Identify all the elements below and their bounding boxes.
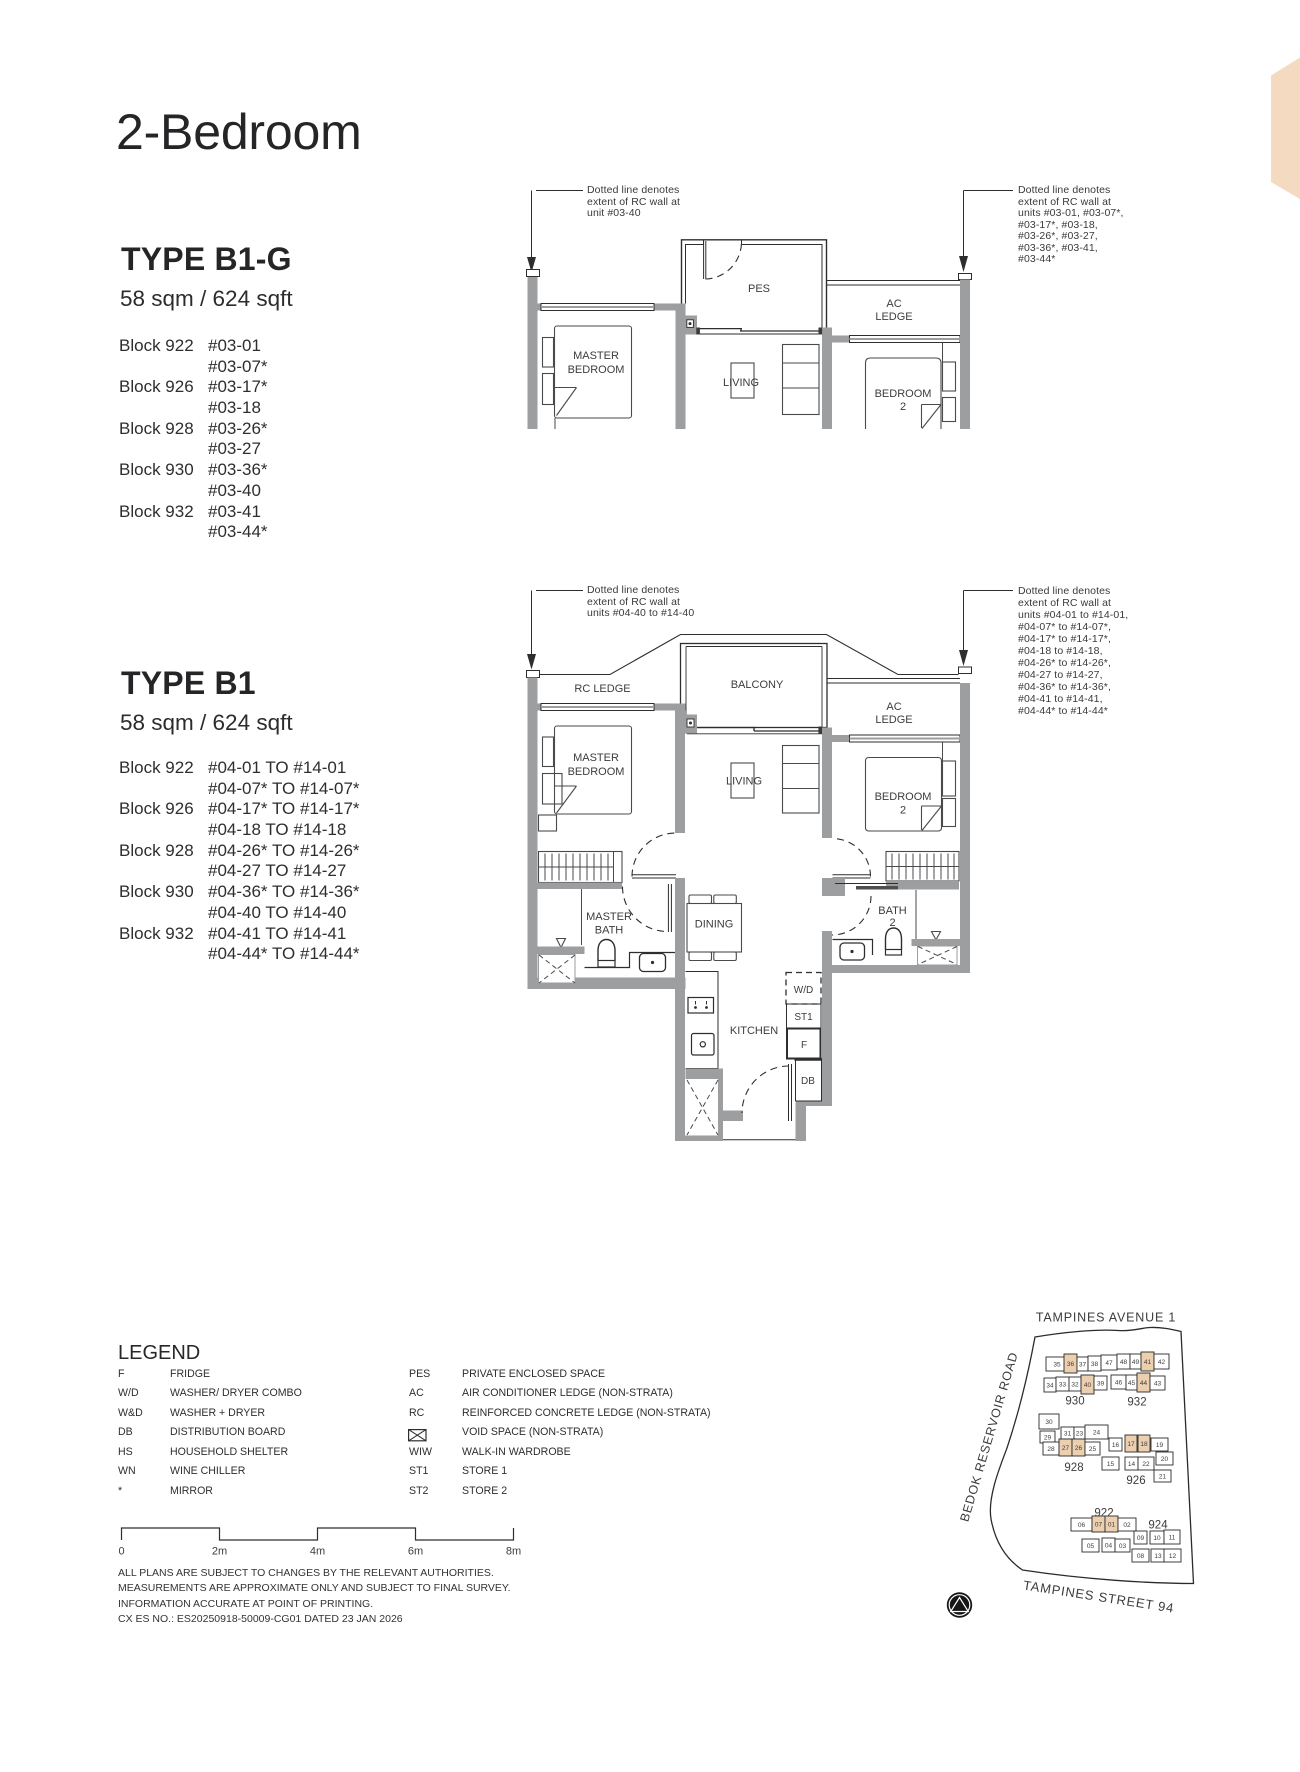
- svg-text:23: 23: [1076, 1430, 1084, 1437]
- svg-text:18: 18: [1140, 1441, 1148, 1448]
- svg-text:LIVING: LIVING: [723, 377, 759, 389]
- svg-text:08: 08: [1137, 1553, 1145, 1560]
- svg-text:22: 22: [1142, 1461, 1150, 1468]
- svg-text:BEDROOM: BEDROOM: [568, 364, 625, 376]
- svg-text:27: 27: [1062, 1445, 1070, 1452]
- svg-text:6m: 6m: [408, 1546, 423, 1558]
- svg-text:MASTER: MASTER: [573, 752, 619, 764]
- svg-text:06: 06: [1078, 1522, 1086, 1529]
- svg-text:39: 39: [1097, 1380, 1105, 1387]
- svg-text:KITCHEN: KITCHEN: [730, 1025, 778, 1037]
- svg-text:BEDROOM: BEDROOM: [875, 388, 932, 400]
- svg-text:MASTER: MASTER: [573, 350, 619, 362]
- svg-text:29: 29: [1044, 1434, 1052, 1441]
- svg-text:2: 2: [889, 917, 895, 929]
- svg-text:PES: PES: [748, 283, 770, 295]
- svg-text:BALCONY: BALCONY: [731, 679, 784, 691]
- svg-text:BEDROOM: BEDROOM: [875, 791, 932, 803]
- svg-text:RC LEDGE: RC LEDGE: [574, 683, 630, 695]
- svg-text:25: 25: [1089, 1446, 1097, 1453]
- svg-text:932: 932: [1127, 1397, 1146, 1409]
- svg-text:48: 48: [1120, 1359, 1128, 1366]
- svg-text:F: F: [801, 1040, 807, 1051]
- svg-text:36: 36: [1067, 1361, 1075, 1368]
- svg-text:TAMPINES AVENUE 1: TAMPINES AVENUE 1: [1036, 1311, 1176, 1325]
- svg-text:41: 41: [1144, 1359, 1152, 1366]
- svg-text:15: 15: [1107, 1461, 1115, 1468]
- svg-text:4m: 4m: [310, 1546, 325, 1558]
- svg-text:44: 44: [1140, 1380, 1148, 1387]
- svg-text:01: 01: [1108, 1521, 1116, 1528]
- svg-text:LEDGE: LEDGE: [875, 311, 912, 323]
- svg-text:LIVING: LIVING: [726, 776, 762, 788]
- svg-text:02: 02: [1123, 1522, 1131, 1529]
- svg-text:BEDOK RESERVOIR ROAD: BEDOK RESERVOIR ROAD: [957, 1350, 1020, 1523]
- svg-text:05: 05: [1087, 1543, 1095, 1550]
- svg-text:AC: AC: [886, 701, 901, 713]
- svg-text:20: 20: [1161, 1456, 1169, 1463]
- svg-text:35: 35: [1053, 1361, 1061, 1368]
- svg-text:49: 49: [1132, 1359, 1140, 1366]
- svg-text:2: 2: [900, 401, 906, 413]
- svg-text:0: 0: [118, 1546, 124, 1558]
- svg-text:12: 12: [1169, 1553, 1177, 1560]
- svg-text:04: 04: [1105, 1542, 1113, 1549]
- svg-text:21: 21: [1159, 1473, 1167, 1480]
- svg-text:03: 03: [1119, 1543, 1127, 1550]
- svg-text:2: 2: [900, 805, 906, 817]
- svg-text:33: 33: [1059, 1381, 1067, 1388]
- svg-text:MASTER: MASTER: [586, 911, 632, 923]
- svg-text:40: 40: [1084, 1382, 1092, 1389]
- svg-text:AC: AC: [886, 298, 901, 310]
- svg-text:16: 16: [1112, 1442, 1120, 1449]
- svg-text:26: 26: [1075, 1445, 1083, 1452]
- svg-text:38: 38: [1091, 1361, 1099, 1368]
- svg-text:930: 930: [1065, 1396, 1084, 1408]
- svg-text:37: 37: [1079, 1361, 1087, 1368]
- svg-text:17: 17: [1127, 1441, 1135, 1448]
- svg-text:14: 14: [1128, 1461, 1136, 1468]
- svg-text:922: 922: [1094, 1508, 1113, 1520]
- svg-text:46: 46: [1115, 1379, 1123, 1386]
- svg-text:24: 24: [1093, 1429, 1101, 1436]
- svg-text:W/D: W/D: [794, 985, 813, 996]
- svg-text:19: 19: [1156, 1442, 1164, 1449]
- svg-text:47: 47: [1105, 1360, 1113, 1367]
- svg-text:43: 43: [1154, 1380, 1162, 1387]
- svg-text:924: 924: [1148, 1520, 1168, 1532]
- svg-text:11: 11: [1169, 1534, 1176, 1541]
- svg-text:DINING: DINING: [695, 919, 734, 931]
- svg-text:13: 13: [1154, 1553, 1162, 1560]
- svg-text:07: 07: [1095, 1521, 1103, 1528]
- svg-text:09: 09: [1137, 1535, 1145, 1542]
- svg-text:31: 31: [1064, 1430, 1072, 1437]
- svg-text:BATH: BATH: [878, 905, 907, 917]
- svg-text:32: 32: [1071, 1381, 1079, 1388]
- svg-text:2m: 2m: [212, 1546, 227, 1558]
- svg-text:30: 30: [1045, 1419, 1053, 1426]
- svg-text:DB: DB: [801, 1076, 815, 1087]
- svg-text:ST1: ST1: [794, 1012, 813, 1023]
- svg-text:BEDROOM: BEDROOM: [568, 766, 625, 778]
- svg-text:34: 34: [1046, 1382, 1054, 1389]
- svg-text:LEDGE: LEDGE: [875, 714, 912, 726]
- svg-text:8m: 8m: [506, 1546, 521, 1558]
- svg-text:45: 45: [1128, 1380, 1136, 1387]
- svg-text:926: 926: [1126, 1475, 1145, 1487]
- svg-text:42: 42: [1158, 1359, 1166, 1366]
- svg-text:10: 10: [1153, 1535, 1161, 1542]
- svg-text:928: 928: [1064, 1462, 1083, 1474]
- svg-text:28: 28: [1047, 1446, 1055, 1453]
- svg-text:BATH: BATH: [595, 925, 624, 937]
